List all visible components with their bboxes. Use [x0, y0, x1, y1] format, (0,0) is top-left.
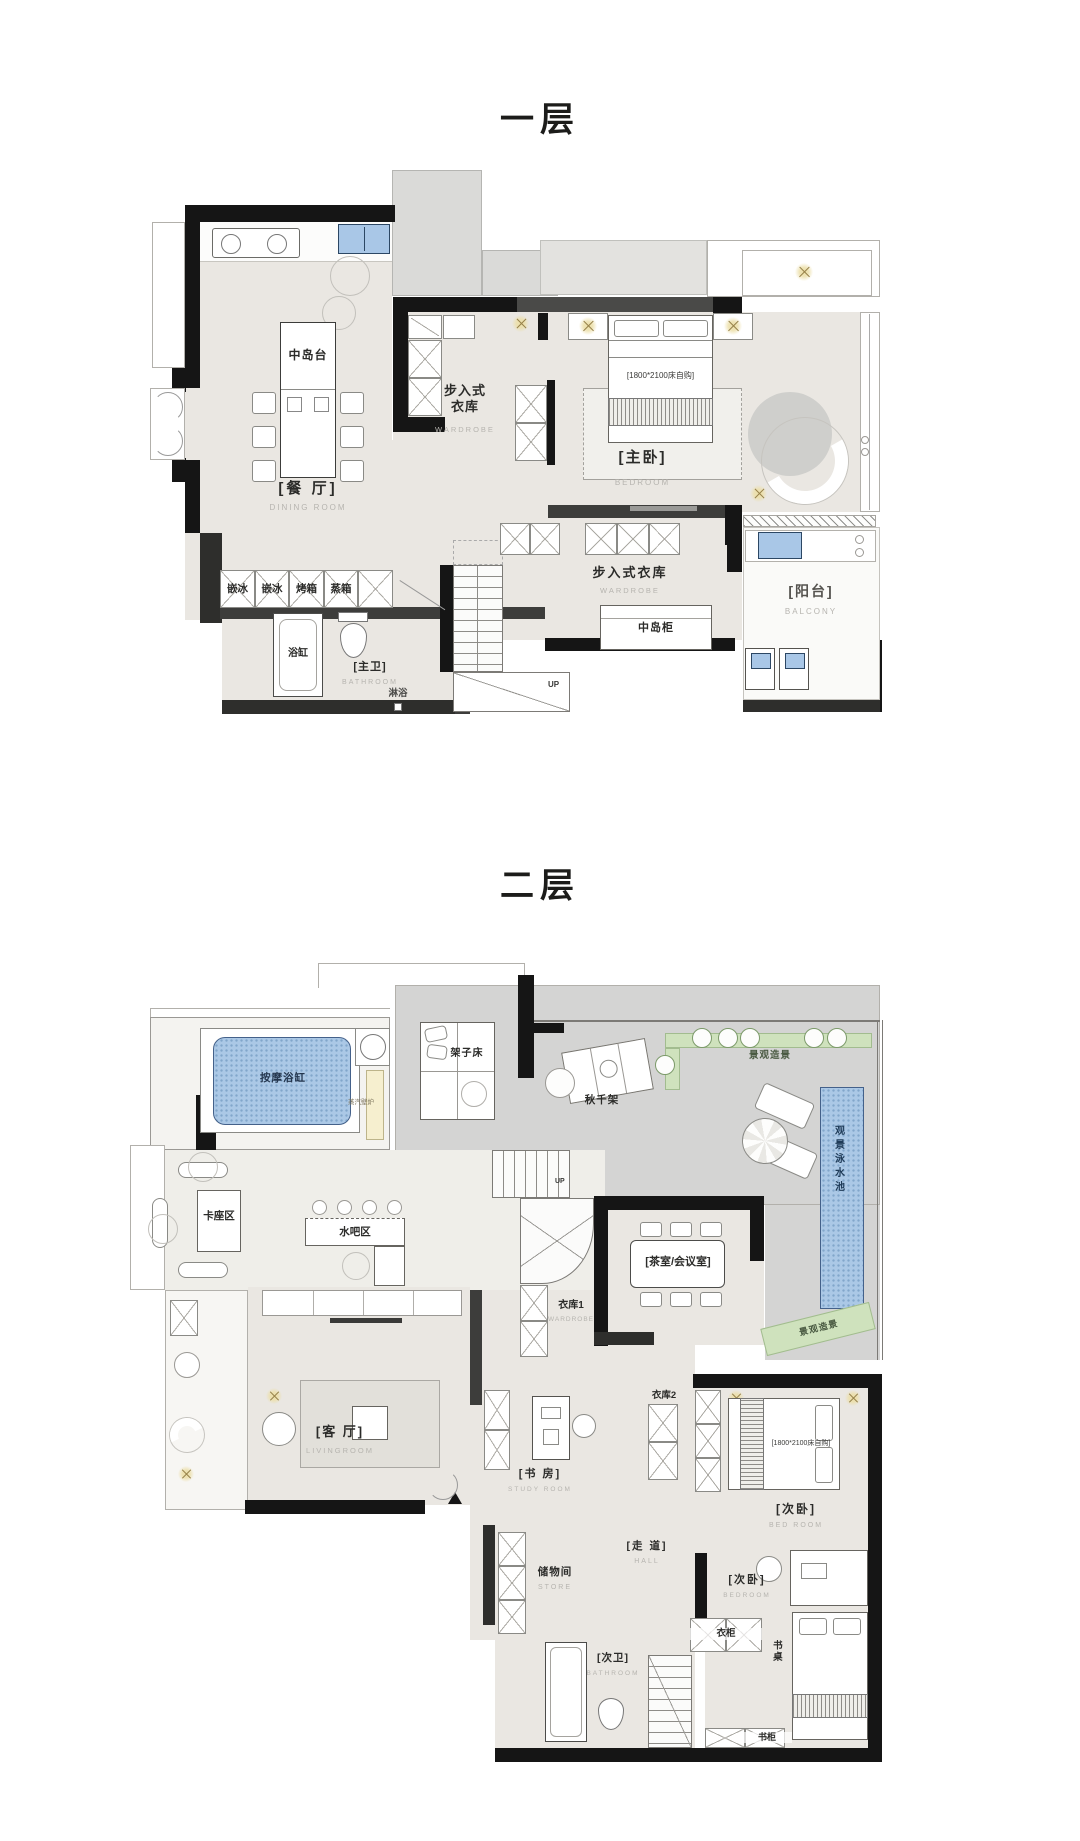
store-label-en: STORE — [520, 1584, 590, 1591]
bed-note: [1800*2100床自购] — [756, 1438, 846, 1448]
tea-room-label: [茶室/会议室] — [618, 1256, 738, 1270]
hall-label: [走 道] — [612, 1540, 682, 1553]
cabinet-line — [411, 318, 439, 336]
study-label: [书 房] — [490, 1468, 590, 1482]
ceiling-light-icon — [512, 315, 529, 332]
mirror-icon — [174, 1352, 200, 1378]
wardrobe-cabinet — [520, 1321, 548, 1357]
balcony-label: [阳台] — [756, 583, 866, 601]
wardrobe-cabinet — [649, 523, 680, 555]
store-label: 储物间 — [520, 1566, 590, 1579]
wardrobe2-label: 步入式衣库 — [570, 565, 690, 581]
wardrobe-cabinet — [585, 523, 617, 555]
wall — [868, 1545, 882, 1760]
chair — [252, 426, 276, 448]
wall — [534, 1023, 564, 1033]
bar-stool — [387, 1200, 402, 1215]
wall — [245, 1500, 425, 1514]
storage-shelf — [498, 1532, 526, 1566]
cabinet-line — [413, 1291, 414, 1315]
ceiling-light-icon — [724, 317, 742, 335]
wall — [495, 1748, 882, 1762]
media-cabinet — [262, 1290, 462, 1316]
basin-bowl — [785, 653, 805, 669]
study-label-en: STUDY ROOM — [490, 1486, 590, 1493]
massage-bathtub-label: 按摩浴缸 — [228, 1072, 338, 1085]
bathtub-inner — [550, 1647, 582, 1737]
appliance-label: 烤箱 — [289, 583, 324, 596]
bookcase — [484, 1390, 510, 1430]
viewing-pool-label: 观景泳水池 — [831, 1125, 844, 1195]
closet-label: 衣柜 — [690, 1628, 762, 1640]
sink-divider — [364, 227, 365, 251]
basin-unit — [779, 648, 809, 690]
shower-label: 淋浴 — [378, 688, 418, 700]
fitting-icon — [855, 535, 864, 544]
floorplan-canvas: 一层 — [0, 0, 1080, 1841]
table-divider — [281, 389, 335, 390]
plate-icon — [314, 397, 329, 412]
figure-icon — [461, 1081, 487, 1107]
stairs-lower — [648, 1655, 692, 1748]
chair — [640, 1292, 662, 1307]
island-dining-table — [280, 322, 336, 478]
study-desk — [532, 1396, 570, 1460]
bar-stool — [312, 1200, 327, 1215]
wall-thin — [877, 1020, 883, 1360]
chair — [670, 1292, 692, 1307]
desk — [790, 1550, 868, 1606]
stairs-diagonal — [649, 1656, 691, 1747]
island-label: 中岛台 — [280, 348, 336, 363]
bathtub-label: 浴缸 — [273, 648, 323, 661]
island-cabinet-label: 中岛柜 — [600, 622, 712, 636]
figure-icon — [148, 1214, 178, 1244]
wall — [693, 1374, 868, 1388]
ceiling-light-icon — [795, 263, 813, 281]
appliance-cabinet — [358, 570, 393, 608]
bed-runner — [792, 1694, 868, 1718]
plate-icon — [287, 397, 302, 412]
balcony-label-en: BALCONY — [756, 607, 866, 616]
fitting-icon — [861, 448, 869, 456]
wall — [200, 533, 222, 623]
chair — [340, 392, 364, 414]
basin-bowl — [751, 653, 771, 669]
bed-line — [457, 1023, 458, 1119]
pillow — [833, 1618, 861, 1635]
washbasin-unit — [355, 1028, 390, 1066]
wall — [538, 313, 548, 340]
wardrobe-cabinet — [648, 1442, 678, 1480]
stairs-rail — [477, 566, 478, 671]
window-sill-hatch — [743, 515, 876, 527]
booth-seat — [178, 1262, 228, 1278]
wall — [713, 297, 742, 313]
toilet-tank — [338, 612, 368, 622]
swing-line — [590, 1049, 600, 1098]
plant-icon — [804, 1028, 824, 1048]
wardrobe2-label: 衣库2 — [640, 1390, 688, 1402]
bedroom2-label: [次卧] — [756, 1502, 836, 1517]
frame-bed-label: 架子床 — [432, 1048, 502, 1061]
wall — [185, 205, 395, 222]
bath2-label: [次卫] — [585, 1652, 641, 1665]
figure-icon — [188, 1152, 218, 1182]
wardrobe-cabinet — [695, 1458, 721, 1492]
bed-note: [1800*2100床自购] — [608, 370, 713, 381]
tv-console — [630, 506, 697, 511]
burner-icon — [267, 234, 287, 254]
master-bedroom-label: [主卧] — [595, 449, 690, 468]
wall — [393, 297, 517, 312]
wall — [518, 975, 534, 1078]
tv — [330, 1318, 402, 1323]
cabinet-line — [313, 1291, 314, 1315]
chair — [670, 1222, 692, 1237]
appliance-label: 嵌冰 — [255, 583, 289, 596]
ceiling-light-icon — [579, 317, 597, 335]
desk-label: 书桌 — [770, 1640, 782, 1663]
ceiling-light-icon — [845, 1390, 861, 1406]
chair — [252, 460, 276, 482]
wardrobe-cabinet — [648, 1404, 678, 1442]
kitchen-sink — [338, 224, 390, 254]
void-gray-band — [392, 170, 482, 296]
stairs-up — [453, 565, 503, 672]
wardrobe-cabinet — [408, 340, 442, 378]
desk-item — [541, 1407, 561, 1419]
wall — [868, 1374, 882, 1564]
frame-bed — [420, 1022, 495, 1120]
chair — [340, 460, 364, 482]
stairs-dashed — [453, 540, 503, 565]
up-label: UP — [555, 1178, 565, 1185]
plant-icon — [827, 1028, 847, 1048]
appliance-label: 蒸箱 — [324, 583, 358, 596]
storage-shelf — [498, 1600, 526, 1634]
basin-unit — [745, 648, 775, 690]
wall — [594, 1332, 654, 1345]
wall — [750, 1196, 764, 1261]
window-line — [869, 314, 870, 510]
cabinet-line — [363, 1291, 364, 1315]
window-band-right — [860, 312, 880, 512]
wardrobe2-label-en: WARDROBE — [570, 586, 690, 595]
wardrobe-cabinet — [530, 523, 560, 555]
bookshelf-cabinet — [705, 1728, 745, 1748]
wardrobe-island-cabinet — [515, 385, 547, 423]
pillow — [663, 320, 708, 337]
bathtub2 — [545, 1642, 587, 1742]
wardrobe-island-cabinet — [515, 423, 547, 461]
plant-icon — [692, 1028, 712, 1048]
wardrobe1-label-en: WARDROBE — [420, 425, 510, 434]
living-room-label: [客 厅] — [290, 1424, 390, 1440]
appliance-label: 嵌冰 — [220, 583, 255, 596]
bath2-label-en: BATHROOM — [578, 1670, 648, 1677]
wall — [172, 458, 186, 482]
bedroom3-label: [次卧] — [712, 1574, 782, 1588]
wall — [185, 460, 200, 533]
wall — [470, 1290, 482, 1405]
booth-label: 卡座区 — [186, 1210, 252, 1223]
fitting-icon — [861, 436, 869, 444]
plant-icon — [740, 1028, 760, 1048]
wall-thin — [534, 1020, 880, 1022]
plant-icon — [718, 1028, 738, 1048]
floor-drain-icon — [394, 703, 402, 711]
bookshelf-label: 书柜 — [742, 1732, 792, 1743]
chair — [252, 392, 276, 414]
wardrobe1-label-en: WARDROBE — [542, 1316, 600, 1323]
desk-item — [801, 1563, 827, 1579]
pillow — [799, 1618, 827, 1635]
person-figure-icon — [330, 256, 370, 296]
ceiling-light-icon — [750, 485, 767, 502]
stairs-landing — [453, 672, 570, 712]
wardrobe-cabinet — [695, 1424, 721, 1458]
swing-seat-icon — [598, 1058, 619, 1079]
bed — [792, 1612, 868, 1740]
up-label: UP — [548, 680, 559, 689]
stairs-straight — [492, 1150, 570, 1198]
bedroom2-label-en: BED ROOM — [756, 1522, 836, 1529]
umbrella-icon — [742, 1118, 788, 1164]
bar-stool — [362, 1200, 377, 1215]
wardrobe1-label: 步入式 衣库 — [420, 383, 510, 416]
wall — [743, 700, 880, 712]
swing-line — [617, 1044, 627, 1093]
wall — [222, 700, 470, 714]
chair — [700, 1222, 722, 1237]
wall — [594, 1196, 608, 1346]
swing-label: 秋千架 — [562, 1094, 642, 1107]
steam-fireplace-label: 蒸汽壁炉 — [348, 1096, 374, 1106]
pillow — [815, 1447, 833, 1483]
wall — [727, 515, 742, 572]
pillow — [614, 320, 659, 337]
landscape-label: 景观造景 — [720, 1050, 820, 1062]
bookcase — [484, 1430, 510, 1470]
dining-room-label-en: DINING ROOM — [248, 503, 368, 512]
wall — [483, 1525, 495, 1625]
cabinet — [408, 315, 442, 339]
bar-label: 水吧区 — [305, 1226, 405, 1239]
wardrobe-cabinet — [617, 523, 649, 555]
floor2-title: 二层 — [0, 858, 1080, 907]
bar-counter-return — [374, 1246, 405, 1286]
burner-icon — [221, 234, 241, 254]
chair — [340, 426, 364, 448]
headboard-band — [609, 340, 712, 358]
cabinet — [443, 315, 475, 339]
viewing-pool — [820, 1087, 864, 1309]
master-bath-label-en: BATHROOM — [335, 679, 405, 686]
floor1-title: 一层 — [0, 92, 1080, 141]
bedroom3-label-en: BEDROOM — [712, 1592, 782, 1599]
master-bedroom-label-en: BEDROOM — [595, 478, 690, 487]
living-room-label-en: LIVINGROOM — [290, 1446, 390, 1455]
landing-diagonal — [454, 673, 569, 711]
desk-item — [543, 1429, 559, 1445]
cabinet — [170, 1300, 198, 1336]
chair — [640, 1222, 662, 1237]
wall — [393, 297, 408, 432]
wardrobe-cabinet — [500, 523, 530, 555]
wall — [440, 565, 453, 672]
window-band-left — [152, 222, 185, 368]
pillow — [815, 1405, 833, 1441]
fitting-icon — [855, 548, 864, 557]
wall — [517, 297, 713, 312]
terrace-top — [540, 240, 707, 295]
plant-icon — [655, 1055, 675, 1075]
figure-icon — [342, 1252, 370, 1280]
bar-stool — [337, 1200, 352, 1215]
pillow — [424, 1025, 448, 1043]
wardrobe-cabinet — [695, 1390, 721, 1424]
hall-label-en: HALL — [612, 1558, 682, 1565]
dining-room-label: [餐 厅] — [248, 480, 368, 499]
wardrobe1-label: 衣库1 — [548, 1300, 594, 1313]
washbasin-bowl — [360, 1034, 386, 1060]
bed-runner — [608, 398, 713, 426]
wall — [594, 1196, 764, 1210]
ceiling-light-icon — [178, 1466, 194, 1482]
chair — [700, 1292, 722, 1307]
wall — [185, 205, 200, 388]
stove — [212, 228, 300, 258]
desk-chair — [572, 1414, 596, 1438]
master-bath-label: [主卫] — [340, 661, 400, 675]
balcony-sink — [758, 532, 802, 559]
cabinet-line — [601, 618, 711, 619]
wall — [547, 380, 555, 465]
floor-lamp-icon — [266, 1388, 282, 1404]
